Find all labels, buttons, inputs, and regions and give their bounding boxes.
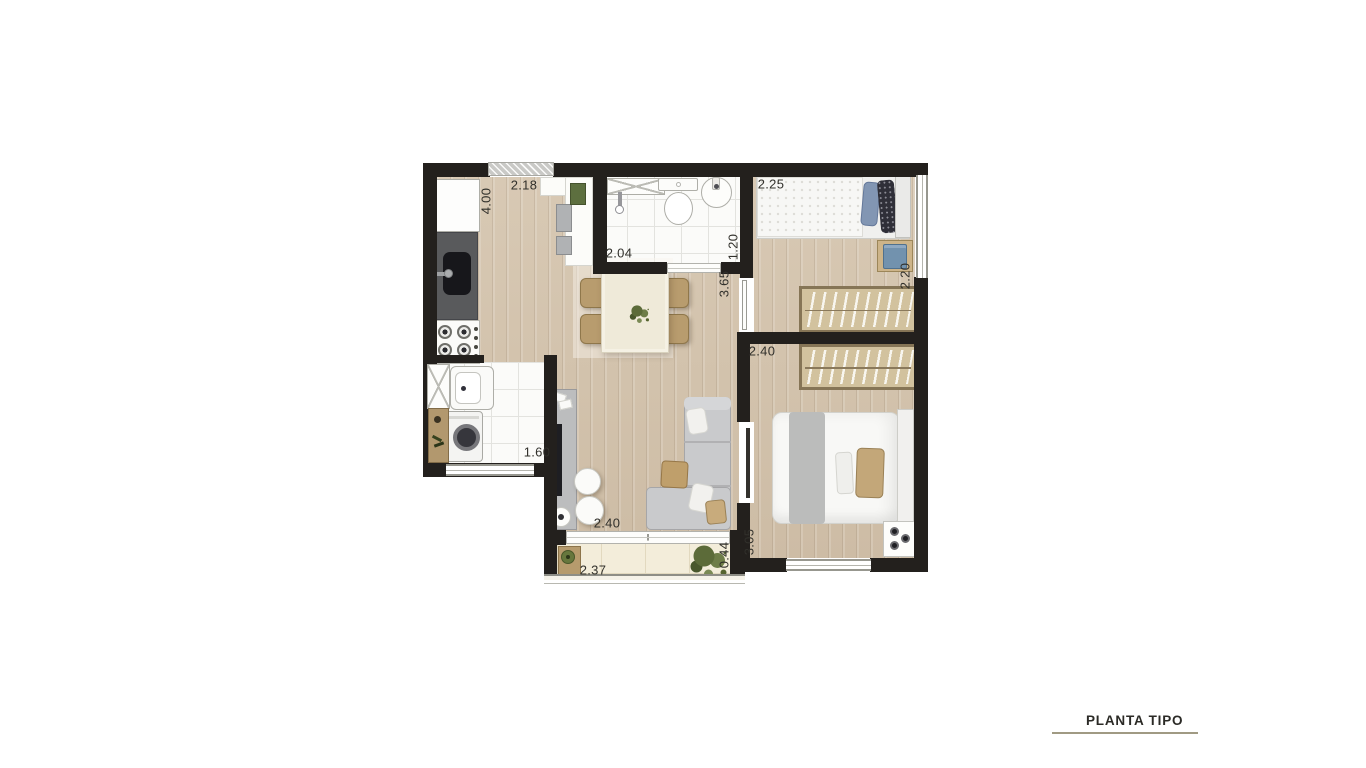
laundry-sink [450,366,494,410]
bedroom2-window [916,175,928,278]
laundry-sink-basin [455,372,481,404]
washer-panel [448,416,479,419]
wardrobe [799,344,917,390]
wall [544,530,566,545]
exterior-area [423,477,544,587]
refrigerator [436,179,480,232]
toilet-button [676,182,681,187]
sofa-pillow-tan [705,499,727,525]
wall [914,277,928,572]
dim-label: 2.40 [594,516,621,531]
dim-label: 2.18 [511,178,538,193]
shower-knob [615,205,624,214]
sofa-pillow [685,406,709,435]
wall [434,355,484,363]
dim-label: 2.25 [758,177,785,192]
pouf [574,468,601,495]
pot-center [566,555,570,559]
washing-machine [445,411,483,462]
basin-drain [714,184,719,189]
double-bed-blanket [789,412,825,524]
stove-knob [474,327,478,331]
stove-burner [438,325,452,339]
bedroom2-door-leaf [742,280,747,330]
dim-label: 3.05 [742,529,757,556]
kitchen-window [488,162,554,176]
laundry-shelf [428,408,449,463]
sofa-cushion-tan [660,460,688,488]
bedroom1-window [786,559,871,571]
wall-cabinet [556,204,572,232]
balcony-railing [544,574,745,584]
laundry-cabinet [427,364,450,409]
toilet-tank [658,178,698,191]
pillow-white [835,452,854,495]
single-bed-headboard [895,176,911,238]
shower-box [607,178,665,195]
wardrobe-rail [805,310,911,312]
stove-knob [474,336,478,340]
nightstand [883,521,917,557]
dim-label: 3.65 [717,271,732,298]
washer-door [453,424,480,451]
wall [544,355,557,583]
nightstand-item [901,534,910,543]
dim-label: 1.60 [524,445,551,460]
cutting-board [570,183,586,205]
pillow-tan [855,448,885,499]
floor-plan-page: 2.18 4.00 2.04 1.20 2.25 2.20 3.65 2.40 … [0,0,1366,768]
double-bed-headboard [897,409,914,526]
bathroom-door [667,263,721,273]
dim-label: 2.40 [749,344,776,359]
toilet-bowl [664,192,693,225]
dim-label: 1.20 [726,234,741,261]
kitchen-faucet-knob [444,269,453,278]
nightstand-item [890,527,899,536]
laundry-sink-drain [461,386,466,391]
shelf-plant [434,441,444,447]
shelf-item [434,416,441,423]
wall [737,332,928,344]
wall [740,163,753,278]
balcony-pot [561,550,575,564]
nightstand-item [890,541,899,550]
stove-knob [474,345,478,349]
wardrobe [799,286,917,333]
balcony-plant [697,549,711,563]
wall [593,262,667,274]
dim-label: 2.20 [898,263,913,290]
sofa-seam [684,441,731,443]
dim-label: 4.00 [479,188,494,215]
dim-label: 0.44 [717,542,732,569]
plan-title: PLANTA TIPO [1086,713,1183,728]
wardrobe-rail [805,367,911,369]
balcony-sliding-door [566,531,730,544]
laundry-window [446,464,534,476]
dim-label: 2.37 [580,563,607,578]
title-underline [1052,732,1198,734]
stove-burner [457,325,471,339]
table-plant [630,304,644,318]
bedroom1-door-leaf [746,428,750,498]
wall-cabinet [556,236,572,255]
dim-label: 2.04 [606,246,633,261]
vase-center [558,514,564,520]
